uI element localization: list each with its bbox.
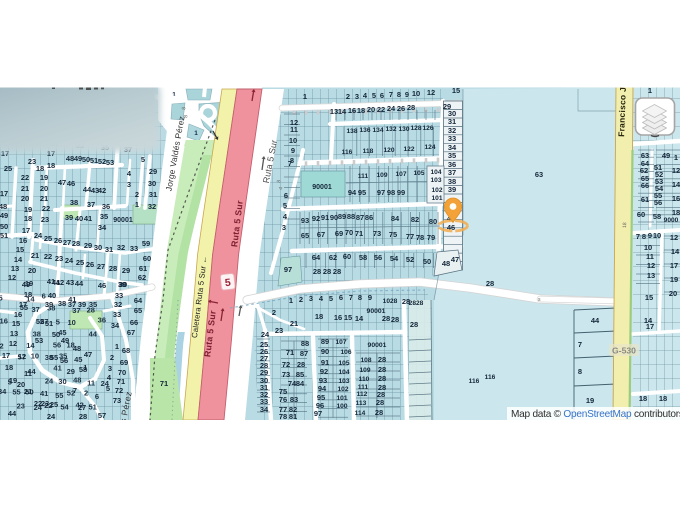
svg-text:114: 114 — [355, 410, 366, 417]
svg-text:39: 39 — [65, 213, 73, 222]
svg-text:28: 28 — [375, 408, 383, 417]
svg-text:20: 20 — [40, 184, 48, 193]
svg-text:49: 49 — [22, 280, 30, 289]
svg-text:35: 35 — [448, 151, 456, 160]
svg-text:55: 55 — [55, 391, 63, 400]
svg-text:18: 18 — [357, 106, 365, 115]
svg-text:2: 2 — [84, 388, 88, 397]
svg-text:32: 32 — [148, 202, 156, 211]
svg-text:97: 97 — [314, 409, 322, 418]
svg-text:73: 73 — [282, 370, 290, 379]
svg-text:37: 37 — [448, 168, 456, 177]
svg-text:101: 101 — [431, 195, 442, 202]
svg-text:68: 68 — [122, 346, 130, 355]
svg-text:26: 26 — [86, 260, 94, 269]
svg-text:21: 21 — [40, 194, 48, 203]
svg-text:54: 54 — [390, 254, 399, 263]
svg-text:44: 44 — [89, 330, 98, 339]
svg-text:1: 1 — [194, 130, 198, 137]
svg-text:34: 34 — [111, 321, 120, 330]
svg-text:10: 10 — [653, 231, 661, 240]
svg-text:16: 16 — [348, 106, 356, 115]
svg-text:14: 14 — [672, 180, 680, 189]
svg-text:50: 50 — [0, 222, 8, 231]
svg-text:22: 22 — [21, 173, 29, 182]
svg-text:116: 116 — [469, 378, 480, 385]
svg-text:29: 29 — [149, 167, 157, 176]
svg-text:24: 24 — [34, 231, 43, 240]
svg-text:10: 10 — [644, 243, 652, 252]
svg-text:88: 88 — [347, 212, 355, 221]
svg-text:9000: 9000 — [664, 217, 679, 224]
svg-text:41: 41 — [68, 295, 76, 304]
svg-text:42: 42 — [98, 186, 106, 195]
svg-text:10: 10 — [289, 136, 297, 145]
svg-text:37: 37 — [32, 305, 40, 314]
svg-text:72: 72 — [115, 386, 123, 395]
svg-text:9: 9 — [405, 90, 409, 99]
svg-text:14: 14 — [26, 341, 35, 350]
svg-text:118: 118 — [363, 148, 374, 155]
svg-text:75: 75 — [389, 230, 397, 239]
svg-text:18: 18 — [66, 341, 74, 350]
svg-text:34: 34 — [98, 223, 107, 232]
svg-text:17: 17 — [2, 351, 10, 360]
svg-text:14: 14 — [671, 247, 680, 256]
svg-text:7: 7 — [389, 90, 393, 99]
svg-text:102: 102 — [337, 386, 348, 393]
svg-text:88: 88 — [301, 339, 309, 348]
svg-text:18: 18 — [47, 161, 55, 170]
svg-text:102: 102 — [431, 187, 442, 194]
svg-text:16: 16 — [672, 194, 680, 203]
svg-text:50: 50 — [423, 257, 431, 266]
svg-text:60: 60 — [637, 210, 645, 219]
svg-text:84: 84 — [391, 214, 400, 223]
svg-text:3: 3 — [355, 92, 359, 101]
svg-text:38: 38 — [47, 304, 55, 313]
svg-text:57: 57 — [17, 352, 25, 361]
svg-text:2: 2 — [135, 190, 139, 199]
svg-text:10: 10 — [68, 318, 76, 327]
svg-text:13: 13 — [11, 264, 19, 273]
svg-text:22: 22 — [44, 401, 52, 410]
svg-text:8: 8 — [642, 232, 646, 241]
svg-text:5: 5 — [0, 294, 3, 303]
svg-text:18: 18 — [659, 394, 667, 403]
svg-text:41: 41 — [53, 363, 61, 372]
svg-text:41: 41 — [40, 389, 48, 398]
svg-text:31: 31 — [448, 117, 456, 126]
svg-text:31: 31 — [149, 190, 157, 199]
svg-text:78: 78 — [416, 233, 424, 242]
svg-text:7: 7 — [578, 340, 582, 349]
svg-text:49: 49 — [662, 151, 670, 160]
svg-text:16: 16 — [19, 236, 27, 245]
svg-text:98: 98 — [387, 188, 395, 197]
svg-text:28: 28 — [376, 398, 384, 407]
svg-text:38: 38 — [70, 198, 78, 207]
svg-text:20: 20 — [367, 105, 375, 114]
svg-text:90001: 90001 — [113, 217, 133, 224]
svg-text:72: 72 — [282, 360, 290, 369]
svg-text:92: 92 — [320, 367, 328, 376]
svg-text:12: 12 — [672, 166, 680, 175]
svg-text:24: 24 — [101, 379, 110, 388]
svg-text:2: 2 — [110, 353, 114, 362]
svg-text:20: 20 — [21, 194, 29, 203]
svg-text:95: 95 — [358, 188, 366, 197]
svg-text:22: 22 — [377, 105, 385, 114]
svg-text:64: 64 — [312, 253, 321, 262]
svg-text:11: 11 — [646, 252, 654, 261]
svg-text:14: 14 — [14, 255, 23, 264]
svg-text:7: 7 — [349, 293, 353, 302]
svg-text:126: 126 — [422, 125, 433, 132]
svg-text:28: 28 — [410, 320, 418, 329]
svg-text:70: 70 — [118, 368, 126, 377]
svg-text:21: 21 — [290, 319, 298, 328]
svg-text:22: 22 — [44, 252, 52, 261]
svg-text:38: 38 — [45, 353, 53, 362]
svg-text:Francisco J: Francisco J — [616, 87, 628, 137]
svg-text:111: 111 — [358, 173, 369, 180]
svg-text:24: 24 — [387, 104, 396, 113]
svg-text:47: 47 — [58, 178, 66, 187]
svg-text:16: 16 — [0, 316, 8, 325]
svg-text:26: 26 — [397, 104, 405, 113]
svg-text:87: 87 — [356, 213, 364, 222]
svg-text:56: 56 — [374, 253, 382, 262]
svg-text:9: 9 — [291, 146, 295, 155]
svg-text:69: 69 — [120, 358, 128, 367]
svg-text:54: 54 — [60, 403, 69, 412]
svg-text:58: 58 — [653, 212, 661, 221]
svg-text:59: 59 — [142, 239, 150, 248]
svg-text:107: 107 — [395, 171, 406, 178]
svg-text:35: 35 — [59, 352, 67, 361]
svg-text:60: 60 — [143, 254, 151, 263]
svg-text:11: 11 — [87, 378, 95, 387]
svg-text:18: 18 — [5, 363, 13, 372]
svg-text:38: 38 — [58, 299, 66, 308]
svg-text:3: 3 — [127, 180, 131, 189]
svg-text:55: 55 — [12, 387, 20, 396]
svg-text:6: 6 — [339, 293, 343, 302]
svg-text:76: 76 — [279, 395, 287, 404]
svg-text:128: 128 — [410, 125, 421, 132]
svg-text:3: 3 — [282, 223, 286, 232]
svg-text:45: 45 — [74, 355, 82, 364]
svg-text:28: 28 — [297, 360, 305, 369]
svg-text:53: 53 — [106, 158, 114, 167]
svg-text:110: 110 — [359, 376, 370, 383]
svg-text:28: 28 — [407, 103, 415, 112]
svg-text:38: 38 — [33, 329, 41, 338]
svg-text:107: 107 — [335, 339, 346, 346]
svg-text:105: 105 — [413, 170, 424, 177]
svg-text:28: 28 — [378, 365, 386, 374]
svg-text:73: 73 — [113, 396, 121, 405]
svg-text:23: 23 — [41, 215, 49, 224]
svg-text:82: 82 — [411, 215, 419, 224]
svg-text:28: 28 — [323, 267, 331, 276]
svg-text:5: 5 — [372, 91, 376, 100]
svg-text:34: 34 — [260, 405, 269, 414]
svg-text:28: 28 — [313, 267, 321, 276]
svg-text:80: 80 — [429, 217, 437, 226]
svg-text:120: 120 — [383, 147, 394, 154]
svg-text:24: 24 — [261, 330, 270, 339]
svg-text:8: 8 — [397, 90, 401, 99]
svg-text:124: 124 — [424, 144, 435, 151]
svg-text:61: 61 — [641, 195, 649, 204]
svg-text:69: 69 — [335, 229, 343, 238]
svg-text:65: 65 — [301, 231, 309, 240]
svg-text:51: 51 — [0, 231, 8, 240]
svg-text:35: 35 — [100, 212, 108, 221]
svg-text:39: 39 — [118, 280, 126, 289]
svg-text:21: 21 — [21, 184, 29, 193]
svg-text:28: 28 — [87, 306, 95, 315]
svg-text:30: 30 — [58, 377, 66, 386]
svg-text:27: 27 — [97, 262, 105, 271]
svg-text:6: 6 — [95, 392, 99, 401]
svg-text:21: 21 — [31, 251, 39, 260]
svg-text:24: 24 — [34, 403, 43, 412]
svg-text:19: 19 — [586, 396, 594, 405]
svg-text:Map data © OpenStreetMap contr: Map data © OpenStreetMap contributors — [511, 409, 680, 420]
svg-text:37: 37 — [72, 306, 80, 315]
svg-text:97: 97 — [377, 188, 385, 197]
svg-text:18: 18 — [36, 164, 44, 173]
svg-text:28: 28 — [72, 239, 80, 248]
svg-text:111: 111 — [358, 384, 369, 391]
svg-text:32: 32 — [117, 243, 125, 252]
svg-text:23: 23 — [17, 401, 25, 410]
svg-text:94: 94 — [348, 188, 357, 197]
svg-text:1: 1 — [674, 153, 678, 162]
svg-text:14: 14 — [355, 314, 364, 323]
svg-text:81: 81 — [289, 412, 297, 421]
svg-text:56: 56 — [53, 341, 61, 350]
svg-text:20: 20 — [669, 289, 677, 298]
svg-text:52: 52 — [67, 389, 75, 398]
svg-text:33: 33 — [113, 310, 121, 319]
svg-text:44: 44 — [27, 367, 36, 376]
svg-text:18: 18 — [315, 312, 323, 321]
svg-text:30: 30 — [148, 179, 156, 188]
svg-text:30: 30 — [94, 243, 102, 252]
svg-text:42: 42 — [75, 400, 83, 409]
svg-text:1: 1 — [83, 363, 87, 372]
svg-text:104: 104 — [430, 169, 441, 176]
svg-text:50: 50 — [25, 388, 33, 397]
svg-text:15: 15 — [645, 293, 653, 302]
svg-text:66: 66 — [641, 181, 649, 190]
svg-text:18: 18 — [622, 222, 628, 228]
svg-text:132: 132 — [385, 126, 396, 133]
svg-text:71: 71 — [117, 377, 125, 386]
svg-text:28: 28 — [486, 279, 494, 288]
svg-text:10: 10 — [412, 89, 420, 98]
svg-text:17: 17 — [0, 189, 8, 198]
svg-text:28: 28 — [79, 412, 87, 421]
svg-text:116: 116 — [485, 374, 496, 381]
svg-text:66: 66 — [130, 318, 138, 327]
svg-text:1028: 1028 — [383, 298, 398, 305]
svg-text:97: 97 — [284, 265, 292, 274]
svg-text:5: 5 — [8, 377, 12, 386]
svg-text:G-530: G-530 — [612, 346, 636, 356]
svg-text:89: 89 — [338, 212, 346, 221]
svg-text:25: 25 — [44, 234, 52, 243]
svg-text:90001: 90001 — [368, 342, 387, 349]
svg-text:109: 109 — [376, 172, 387, 179]
svg-text:19: 19 — [40, 173, 48, 182]
svg-text:9: 9 — [368, 293, 372, 302]
svg-text:37: 37 — [87, 200, 95, 209]
svg-text:64: 64 — [134, 296, 143, 305]
svg-text:15: 15 — [344, 313, 352, 322]
svg-text:10: 10 — [31, 351, 39, 360]
svg-text:47: 47 — [451, 255, 459, 264]
svg-text:70: 70 — [345, 228, 353, 237]
svg-text:41: 41 — [52, 278, 60, 287]
svg-text:109: 109 — [359, 367, 370, 374]
svg-text:27: 27 — [63, 238, 71, 247]
svg-text:12: 12 — [647, 261, 655, 270]
svg-text:28: 28 — [333, 267, 341, 276]
svg-text:108: 108 — [360, 357, 371, 364]
svg-text:57: 57 — [40, 317, 48, 326]
svg-text:13: 13 — [10, 329, 18, 338]
svg-text:7: 7 — [636, 232, 640, 241]
svg-text:45: 45 — [58, 328, 66, 337]
svg-text:62: 62 — [329, 253, 337, 262]
svg-text:6: 6 — [42, 291, 46, 300]
svg-text:48: 48 — [73, 376, 81, 385]
svg-text:48: 48 — [442, 259, 450, 268]
svg-text:51: 51 — [88, 403, 96, 412]
svg-text:24: 24 — [45, 376, 54, 385]
svg-text:1: 1 — [135, 200, 139, 209]
svg-text:73: 73 — [373, 229, 381, 238]
svg-text:25: 25 — [4, 164, 12, 173]
svg-text:28: 28 — [109, 264, 117, 273]
svg-text:25: 25 — [76, 258, 84, 267]
svg-text:60: 60 — [343, 252, 351, 261]
svg-text:40: 40 — [48, 291, 56, 300]
svg-text:46: 46 — [67, 179, 75, 188]
svg-text:32: 32 — [114, 300, 122, 309]
svg-text:130: 130 — [398, 126, 409, 133]
svg-text:5: 5 — [329, 294, 333, 303]
svg-text:20: 20 — [28, 266, 36, 275]
svg-text:15: 15 — [16, 245, 24, 254]
svg-text:33: 33 — [115, 291, 123, 300]
svg-text:5: 5 — [56, 317, 60, 326]
svg-text:13: 13 — [647, 271, 655, 280]
svg-text:112: 112 — [357, 391, 368, 398]
svg-text:2: 2 — [346, 92, 350, 101]
svg-text:85: 85 — [296, 370, 304, 379]
svg-text:5: 5 — [141, 155, 145, 164]
svg-text:94: 94 — [318, 384, 327, 393]
svg-text:46: 46 — [98, 281, 106, 290]
svg-text:1: 1 — [289, 296, 293, 305]
svg-text:67: 67 — [127, 328, 135, 337]
svg-text:24: 24 — [47, 412, 56, 421]
svg-text:138: 138 — [346, 128, 357, 135]
svg-text:6: 6 — [284, 191, 288, 200]
svg-text:14: 14 — [338, 107, 347, 116]
svg-text:12: 12 — [427, 88, 435, 97]
svg-text:31: 31 — [105, 245, 113, 254]
svg-text:3: 3 — [309, 294, 313, 303]
svg-text:19: 19 — [24, 205, 32, 214]
svg-text:61: 61 — [139, 264, 147, 273]
svg-text:8: 8 — [358, 293, 362, 302]
svg-text:3: 3 — [108, 364, 112, 373]
svg-text:71: 71 — [355, 229, 363, 238]
svg-text:52: 52 — [406, 255, 414, 264]
svg-text:36: 36 — [98, 315, 106, 324]
svg-text:65: 65 — [134, 306, 142, 315]
svg-text:9: 9 — [648, 231, 652, 240]
svg-text:105: 105 — [338, 360, 349, 367]
svg-text:8: 8 — [290, 156, 294, 165]
svg-text:62: 62 — [138, 273, 146, 282]
svg-text:2: 2 — [0, 342, 4, 351]
svg-text:113: 113 — [356, 400, 367, 407]
svg-text:92: 92 — [312, 214, 320, 223]
svg-text:100: 100 — [336, 403, 347, 410]
svg-text:48: 48 — [0, 202, 7, 211]
svg-text:5: 5 — [283, 201, 287, 210]
svg-text:106: 106 — [340, 349, 351, 356]
svg-text:101: 101 — [336, 395, 347, 402]
svg-text:29: 29 — [84, 241, 92, 250]
svg-text:11: 11 — [290, 125, 298, 134]
svg-text:2: 2 — [272, 308, 276, 317]
svg-text:2: 2 — [299, 295, 303, 304]
svg-text:2828: 2828 — [409, 300, 424, 307]
svg-text:28: 28 — [391, 315, 399, 324]
svg-text:78: 78 — [279, 412, 287, 421]
svg-text:83: 83 — [290, 395, 298, 404]
svg-text:26: 26 — [54, 236, 62, 245]
svg-text:122: 122 — [403, 146, 414, 153]
svg-text:86: 86 — [365, 213, 373, 222]
svg-text:1: 1 — [303, 92, 307, 101]
svg-text:8: 8 — [578, 367, 582, 376]
svg-text:43: 43 — [66, 278, 74, 287]
svg-text:18: 18 — [672, 208, 680, 217]
svg-text:17: 17 — [670, 261, 678, 270]
svg-text:34: 34 — [0, 387, 7, 396]
svg-text:33: 33 — [448, 134, 456, 143]
svg-text:89: 89 — [321, 337, 329, 346]
svg-text:17: 17 — [22, 226, 30, 235]
svg-text:41: 41 — [84, 214, 92, 223]
svg-text:116: 116 — [342, 149, 353, 156]
svg-text:49: 49 — [0, 211, 8, 220]
svg-text:90001: 90001 — [312, 184, 332, 191]
svg-text:90: 90 — [321, 347, 329, 356]
svg-text:87: 87 — [300, 349, 308, 358]
svg-text:23: 23 — [275, 326, 283, 335]
